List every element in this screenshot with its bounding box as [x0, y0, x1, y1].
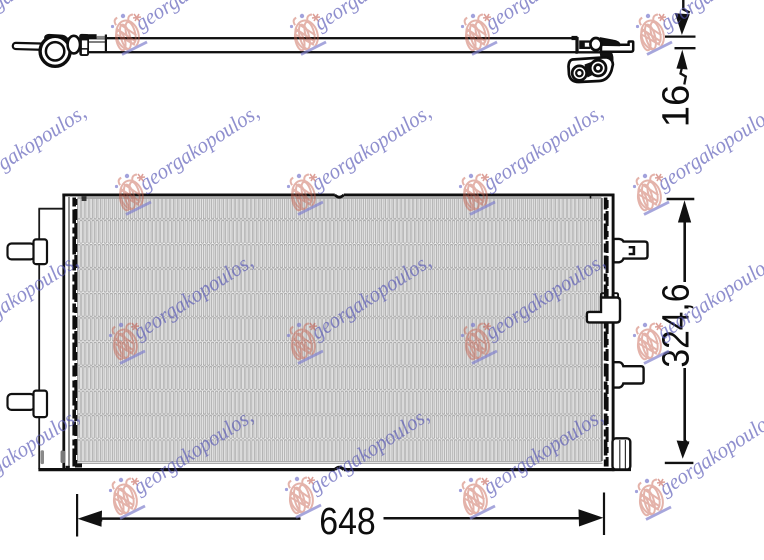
svg-text:16: 16: [656, 85, 698, 128]
svg-text:648: 648: [319, 501, 376, 543]
